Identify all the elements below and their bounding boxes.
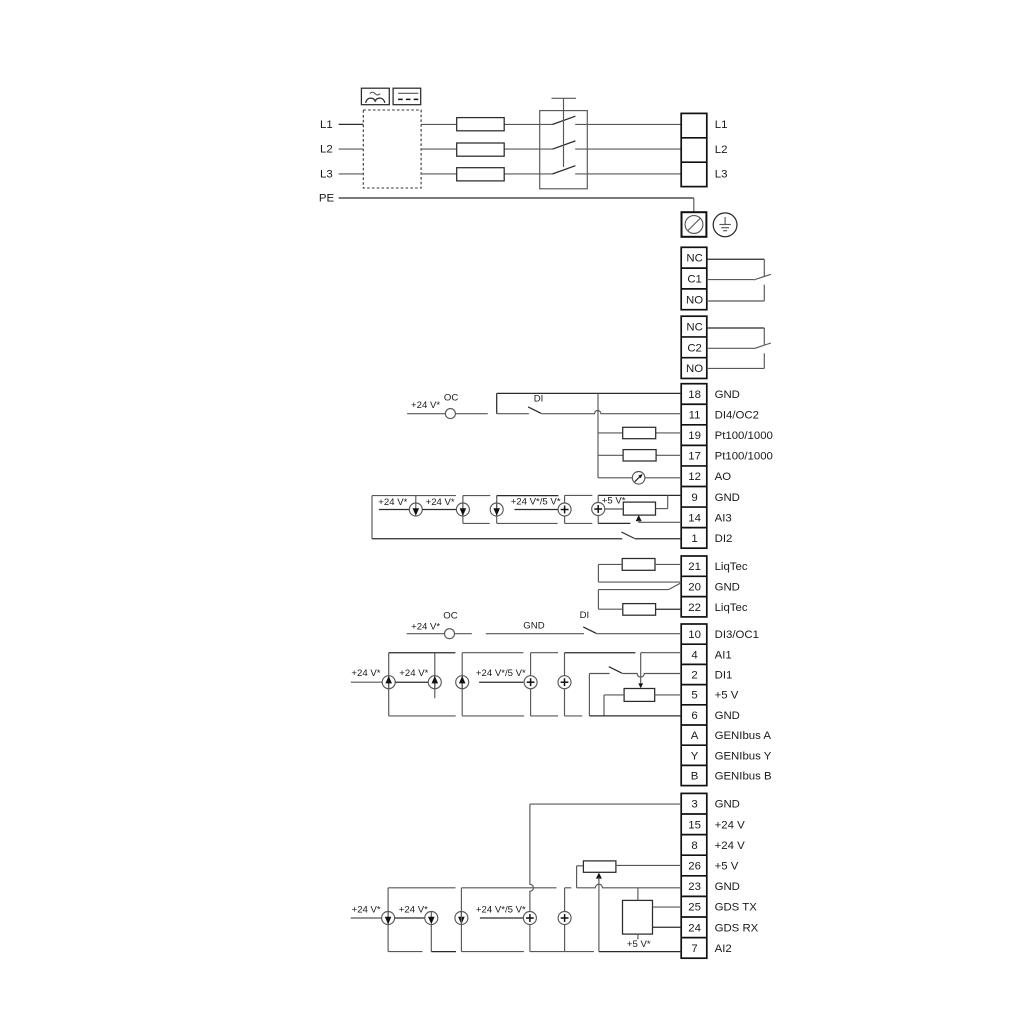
- svg-text:AI2: AI2: [715, 943, 732, 955]
- svg-text:GND: GND: [715, 389, 740, 401]
- svg-text:LiqTec: LiqTec: [715, 602, 748, 614]
- svg-text:A: A: [691, 730, 699, 742]
- svg-text:Pt100/1000: Pt100/1000: [715, 430, 773, 442]
- svg-text:DI: DI: [580, 610, 590, 621]
- svg-text:GDS RX: GDS RX: [715, 922, 759, 934]
- svg-text:GND: GND: [523, 621, 544, 632]
- svg-text:26: 26: [688, 861, 701, 873]
- svg-text:PE: PE: [319, 193, 335, 205]
- svg-text:L2: L2: [715, 144, 728, 156]
- svg-text:+5 V: +5 V: [715, 861, 739, 873]
- svg-text:+24 V*: +24 V*: [411, 400, 440, 411]
- svg-text:GENIbus Y: GENIbus Y: [715, 750, 772, 762]
- svg-text:DI: DI: [534, 394, 544, 405]
- svg-text:25: 25: [688, 902, 701, 914]
- svg-text:AI1: AI1: [715, 649, 732, 661]
- svg-text:21: 21: [688, 561, 701, 573]
- svg-text:L1: L1: [320, 119, 333, 131]
- svg-text:+24 V*: +24 V*: [426, 497, 455, 508]
- svg-text:2: 2: [691, 670, 697, 682]
- svg-text:+24 V*: +24 V*: [352, 905, 381, 916]
- svg-text:GND: GND: [715, 710, 740, 722]
- svg-text:C2: C2: [687, 342, 702, 354]
- svg-text:DI1: DI1: [715, 670, 733, 682]
- svg-text:1: 1: [691, 533, 697, 545]
- svg-text:+24 V*: +24 V*: [378, 497, 407, 508]
- svg-text:+5 V*: +5 V*: [602, 496, 626, 507]
- svg-text:Y: Y: [691, 750, 699, 762]
- svg-text:14: 14: [688, 512, 701, 524]
- svg-text:L3: L3: [715, 169, 728, 181]
- svg-text:+24 V*/5 V*: +24 V*/5 V*: [476, 668, 526, 679]
- svg-text:GND: GND: [715, 492, 740, 504]
- svg-text:18: 18: [688, 389, 701, 401]
- svg-text:17: 17: [688, 451, 701, 463]
- svg-text:L1: L1: [715, 119, 728, 131]
- svg-text:12: 12: [688, 471, 701, 483]
- svg-text:23: 23: [688, 881, 701, 893]
- svg-text:+24 V*: +24 V*: [399, 668, 428, 679]
- svg-text:GND: GND: [715, 881, 740, 893]
- svg-text:4: 4: [691, 649, 697, 661]
- svg-text:+24 V: +24 V: [715, 819, 745, 831]
- svg-text:+24 V*: +24 V*: [411, 621, 440, 632]
- svg-text:NC: NC: [686, 322, 702, 334]
- svg-text:11: 11: [689, 410, 701, 422]
- svg-text:+24 V*/5 V*: +24 V*/5 V*: [511, 497, 561, 508]
- svg-text:22: 22: [688, 602, 701, 614]
- svg-text:+5 V: +5 V: [715, 690, 739, 702]
- svg-text:+5 V*: +5 V*: [627, 939, 651, 950]
- svg-text:C1: C1: [687, 274, 702, 286]
- svg-text:15: 15: [688, 819, 701, 831]
- svg-text:L3: L3: [320, 168, 333, 180]
- svg-text:GENIbus B: GENIbus B: [715, 771, 772, 783]
- svg-text:9: 9: [691, 492, 697, 504]
- svg-text:NO: NO: [686, 363, 703, 375]
- svg-text:DI2: DI2: [715, 533, 733, 545]
- svg-text:7: 7: [691, 943, 697, 955]
- svg-text:LiqTec: LiqTec: [715, 561, 748, 573]
- svg-text:NO: NO: [686, 294, 703, 306]
- svg-text:AO: AO: [715, 471, 732, 483]
- svg-text:OC: OC: [443, 610, 457, 621]
- svg-text:+24 V: +24 V: [715, 840, 745, 852]
- svg-text:20: 20: [688, 581, 701, 593]
- svg-text:+24 V*: +24 V*: [351, 668, 380, 679]
- svg-text:DI4/OC2: DI4/OC2: [715, 410, 759, 422]
- svg-text:AI3: AI3: [715, 512, 732, 524]
- svg-text:B: B: [691, 771, 699, 783]
- svg-text:DI3/OC1: DI3/OC1: [715, 629, 759, 641]
- svg-text:24: 24: [688, 922, 701, 934]
- svg-text:GND: GND: [715, 799, 740, 811]
- svg-text:19: 19: [688, 430, 701, 442]
- svg-text:10: 10: [688, 629, 701, 641]
- svg-text:3: 3: [691, 799, 697, 811]
- svg-text:L2: L2: [320, 144, 333, 156]
- svg-text:6: 6: [691, 710, 697, 722]
- svg-text:GDS TX: GDS TX: [715, 902, 758, 914]
- svg-text:OC: OC: [444, 393, 458, 404]
- svg-text:GND: GND: [715, 581, 740, 593]
- svg-text:8: 8: [691, 840, 697, 852]
- svg-text:5: 5: [691, 690, 697, 702]
- svg-text:Pt100/1000: Pt100/1000: [715, 451, 773, 463]
- svg-text:GENIbus A: GENIbus A: [715, 730, 772, 742]
- svg-text:NC: NC: [686, 253, 702, 265]
- svg-text:+24 V*: +24 V*: [399, 905, 428, 916]
- svg-text:+24 V*/5 V*: +24 V*/5 V*: [476, 905, 526, 916]
